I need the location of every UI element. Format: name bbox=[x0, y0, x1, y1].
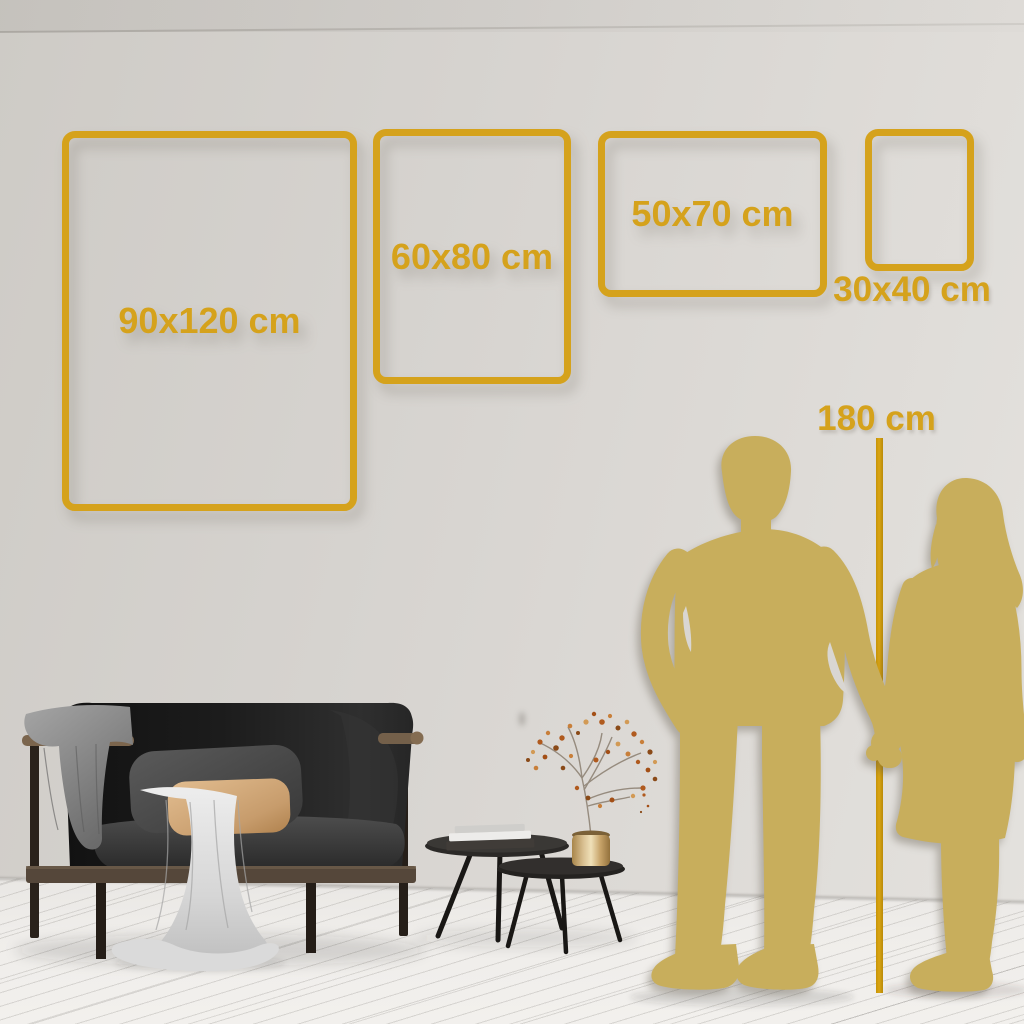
woman-silhouette bbox=[880, 478, 1024, 992]
size-guide-scene: 90x120 cm 60x80 cm 50x70 cm 30x40 cm 180… bbox=[0, 0, 1024, 1024]
couple-silhouette bbox=[0, 0, 1024, 1024]
man-silhouette bbox=[651, 436, 899, 990]
